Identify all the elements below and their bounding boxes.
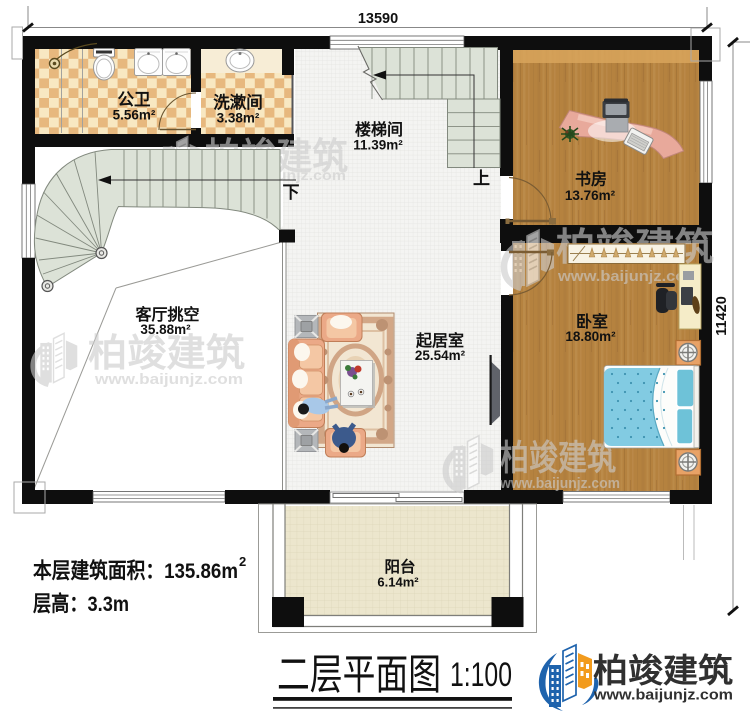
svg-text:1:100: 1:100 bbox=[450, 656, 512, 694]
svg-text:本层建筑面积：135.86m: 本层建筑面积：135.86m bbox=[33, 558, 238, 583]
svg-text:阳台: 阳台 bbox=[384, 557, 415, 576]
svg-text:3.38m²: 3.38m² bbox=[217, 111, 260, 126]
svg-text:二层平面图: 二层平面图 bbox=[277, 651, 441, 698]
svg-text:楼梯间: 楼梯间 bbox=[355, 120, 403, 139]
svg-text:35.88m²: 35.88m² bbox=[140, 322, 191, 337]
svg-text:洗漱间: 洗漱间 bbox=[213, 92, 263, 112]
svg-text:www.baijunjz.com: www.baijunjz.com bbox=[94, 372, 243, 388]
svg-text:13.76m²: 13.76m² bbox=[565, 188, 616, 203]
svg-text:11.39m²: 11.39m² bbox=[353, 138, 403, 153]
svg-text:柏竣建筑: 柏竣建筑 bbox=[593, 652, 733, 689]
svg-text:25.54m²: 25.54m² bbox=[415, 348, 466, 363]
svg-text:13590: 13590 bbox=[358, 11, 398, 27]
svg-text:11420: 11420 bbox=[714, 296, 730, 336]
svg-text:下: 下 bbox=[283, 183, 300, 202]
svg-text:上: 上 bbox=[473, 169, 490, 188]
svg-text:层高：3.3m: 层高：3.3m bbox=[33, 591, 129, 616]
svg-text:2: 2 bbox=[239, 554, 246, 569]
svg-text:www.baijunjz.com: www.baijunjz.com bbox=[593, 688, 733, 704]
svg-text:柏竣建筑: 柏竣建筑 bbox=[500, 438, 616, 478]
svg-text:www.baijunjz.com: www.baijunjz.com bbox=[499, 475, 620, 492]
svg-text:柏竣建筑: 柏竣建筑 bbox=[88, 333, 245, 375]
svg-text:5.56m²: 5.56m² bbox=[113, 108, 156, 123]
svg-text:书房: 书房 bbox=[575, 170, 607, 189]
svg-text:18.80m²: 18.80m² bbox=[565, 329, 616, 344]
svg-text:6.14m²: 6.14m² bbox=[377, 575, 419, 590]
svg-text:www.baijunjz.com: www.baijunjz.com bbox=[557, 268, 700, 285]
svg-text:公卫: 公卫 bbox=[118, 90, 151, 109]
